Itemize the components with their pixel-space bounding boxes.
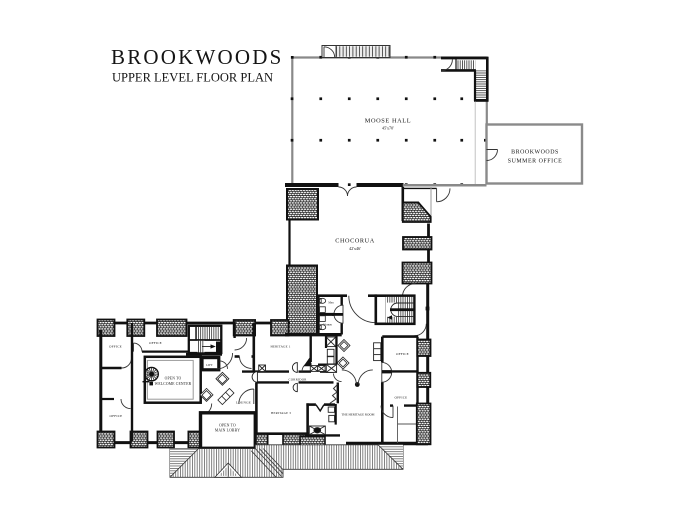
svg-text:LIFT: LIFT [206,363,213,367]
svg-text:OPEN TO: OPEN TO [219,424,236,428]
svg-text:THE HERITAGE ROOM: THE HERITAGE ROOM [341,413,374,417]
svg-text:HERITAGE 1: HERITAGE 1 [270,345,290,349]
svg-text:UPPER LEVEL FLOOR PLAN: UPPER LEVEL FLOOR PLAN [112,71,273,85]
svg-text:LOUNGE: LOUNGE [236,401,251,405]
svg-text:CORRIDOR: CORRIDOR [288,377,307,381]
svg-text:MOOSE HALL: MOOSE HALL [365,118,411,125]
svg-text:HERITAGE 3: HERITAGE 3 [271,411,291,415]
svg-text:Women: Women [323,323,332,327]
svg-text:OFFICE: OFFICE [395,396,408,400]
svg-text:OFFICE: OFFICE [149,341,162,345]
svg-text:OFFICE: OFFICE [109,345,122,349]
svg-text:MAIN LOBBY: MAIN LOBBY [215,428,240,432]
svg-text:SUMMER OFFICE: SUMMER OFFICE [508,159,562,165]
svg-text:BROOKWOODS: BROOKWOODS [511,150,559,156]
svg-text:WELCOME CENTER: WELCOME CENTER [155,382,192,386]
svg-text:OPEN TO: OPEN TO [165,377,182,381]
svg-text:42'x46': 42'x46' [349,246,361,251]
svg-text:CHOCORUA: CHOCORUA [335,238,375,245]
svg-text:Men: Men [328,300,334,304]
svg-text:OFFICE: OFFICE [396,352,409,356]
svg-text:BROOKWOODS: BROOKWOODS [111,45,284,69]
svg-text:45'x70': 45'x70' [382,126,394,131]
svg-text:OFFICE: OFFICE [110,414,123,418]
